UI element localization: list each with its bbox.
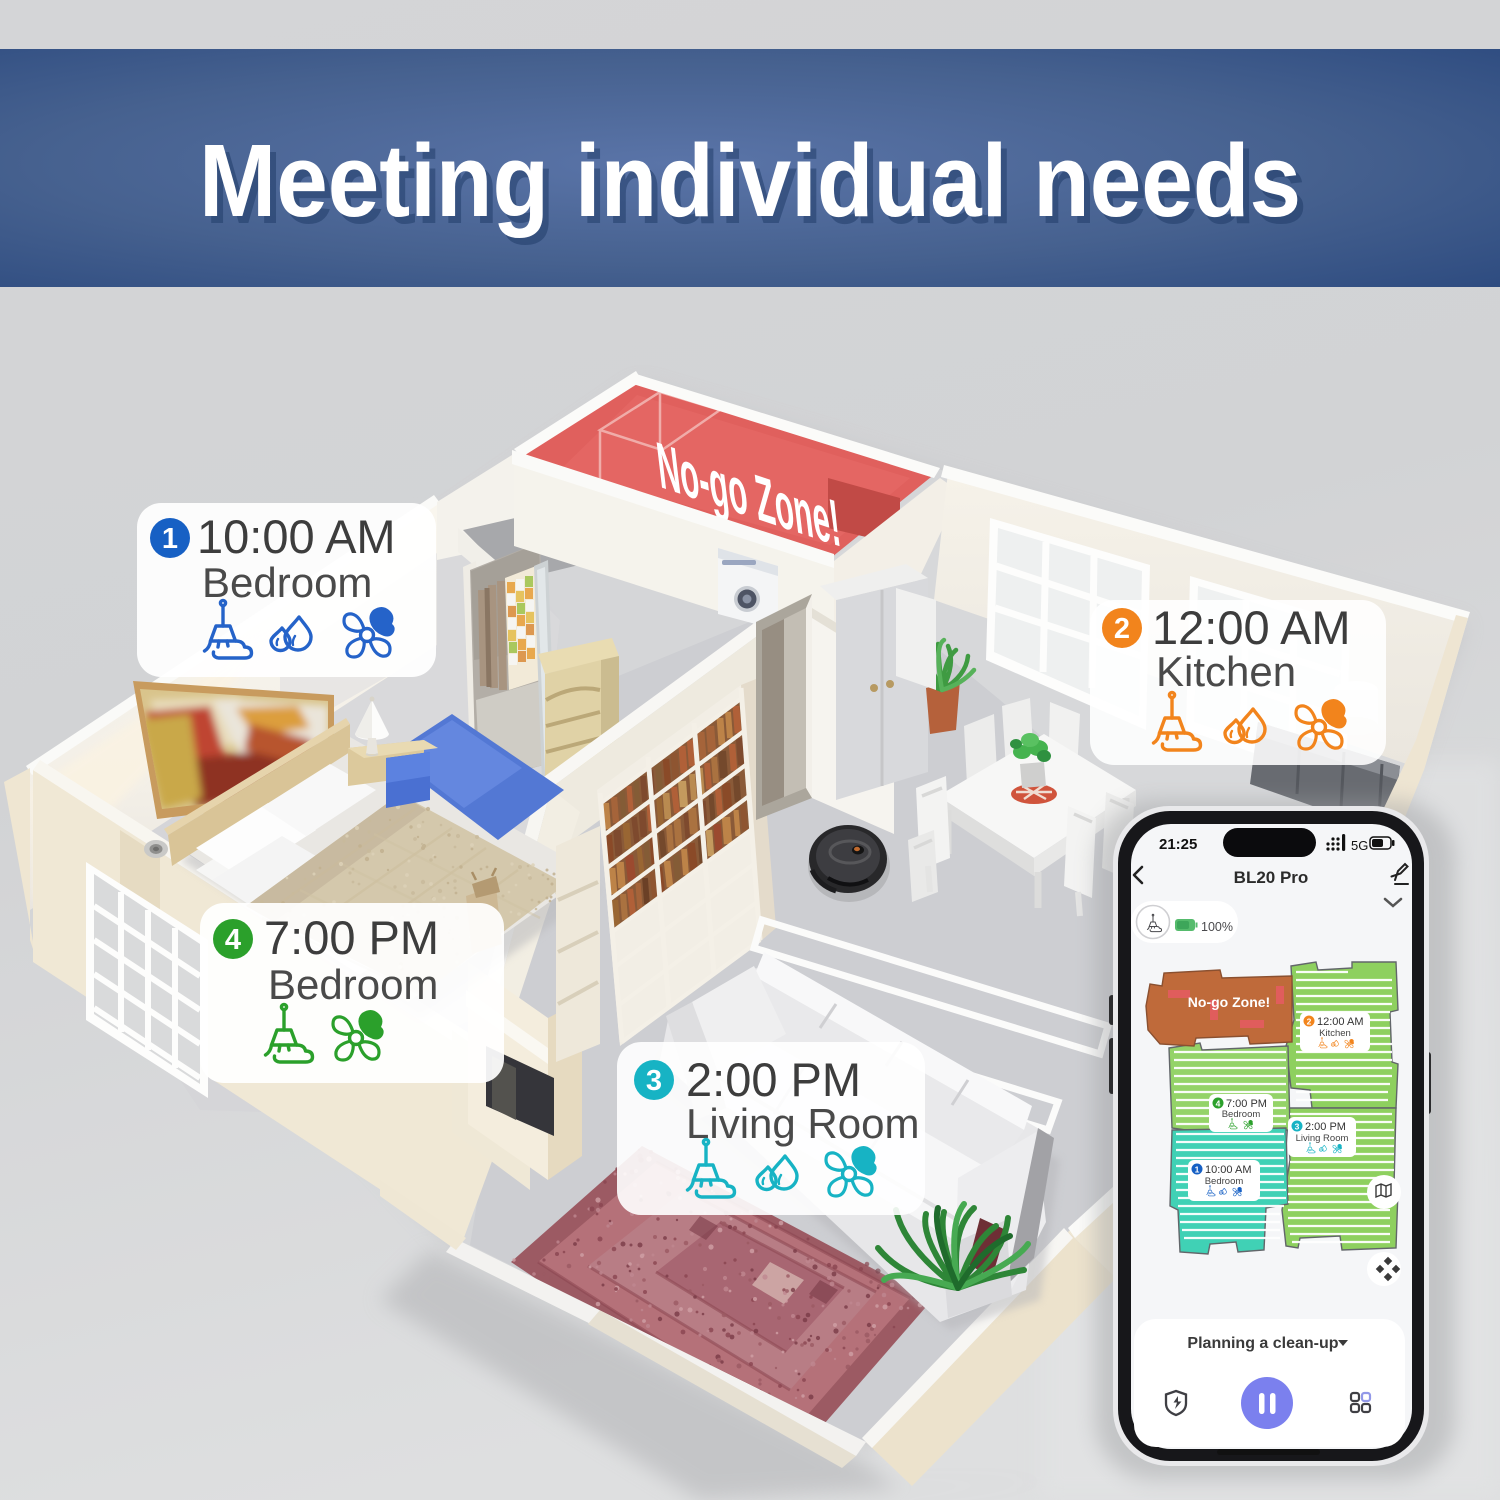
svg-text:Bedroom: Bedroom: [1205, 1176, 1244, 1187]
svg-text:1: 1: [162, 523, 178, 555]
svg-text:Bedroom: Bedroom: [1222, 1109, 1261, 1120]
svg-text:2: 2: [1307, 1017, 1312, 1027]
svg-text:Kitchen: Kitchen: [1156, 648, 1296, 695]
svg-text:Kitchen: Kitchen: [1319, 1028, 1351, 1039]
svg-text:3: 3: [1295, 1122, 1300, 1132]
svg-text:Bedroom: Bedroom: [268, 961, 438, 1008]
svg-text:Living Room: Living Room: [1296, 1133, 1349, 1144]
svg-text:10:00 AM: 10:00 AM: [1205, 1164, 1251, 1176]
svg-text:Living Room: Living Room: [686, 1100, 919, 1147]
svg-text:Meeting individual needs: Meeting individual needs: [199, 123, 1301, 238]
svg-text:100%: 100%: [1201, 920, 1233, 934]
svg-text:10:00 AM: 10:00 AM: [197, 510, 396, 563]
svg-text:21:25: 21:25: [1159, 836, 1197, 853]
svg-text:3: 3: [646, 1065, 662, 1097]
svg-text:5G: 5G: [1351, 838, 1368, 853]
svg-text:4: 4: [1216, 1099, 1221, 1109]
svg-text:2:00 PM: 2:00 PM: [1305, 1121, 1346, 1133]
svg-text:12:00 AM: 12:00 AM: [1152, 601, 1351, 654]
svg-text:No-go Zone!: No-go Zone!: [1188, 994, 1270, 1010]
svg-text:Bedroom: Bedroom: [202, 559, 372, 606]
svg-text:4: 4: [225, 924, 241, 956]
svg-text:7:00 PM: 7:00 PM: [264, 911, 439, 964]
svg-text:1: 1: [1195, 1165, 1200, 1175]
svg-text:Planning a clean-up: Planning a clean-up: [1187, 1335, 1338, 1352]
svg-text:2: 2: [1114, 613, 1130, 645]
svg-text:2:00 PM: 2:00 PM: [686, 1053, 861, 1106]
svg-text:12:00 AM: 12:00 AM: [1317, 1016, 1363, 1028]
svg-text:BL20 Pro: BL20 Pro: [1234, 868, 1309, 887]
